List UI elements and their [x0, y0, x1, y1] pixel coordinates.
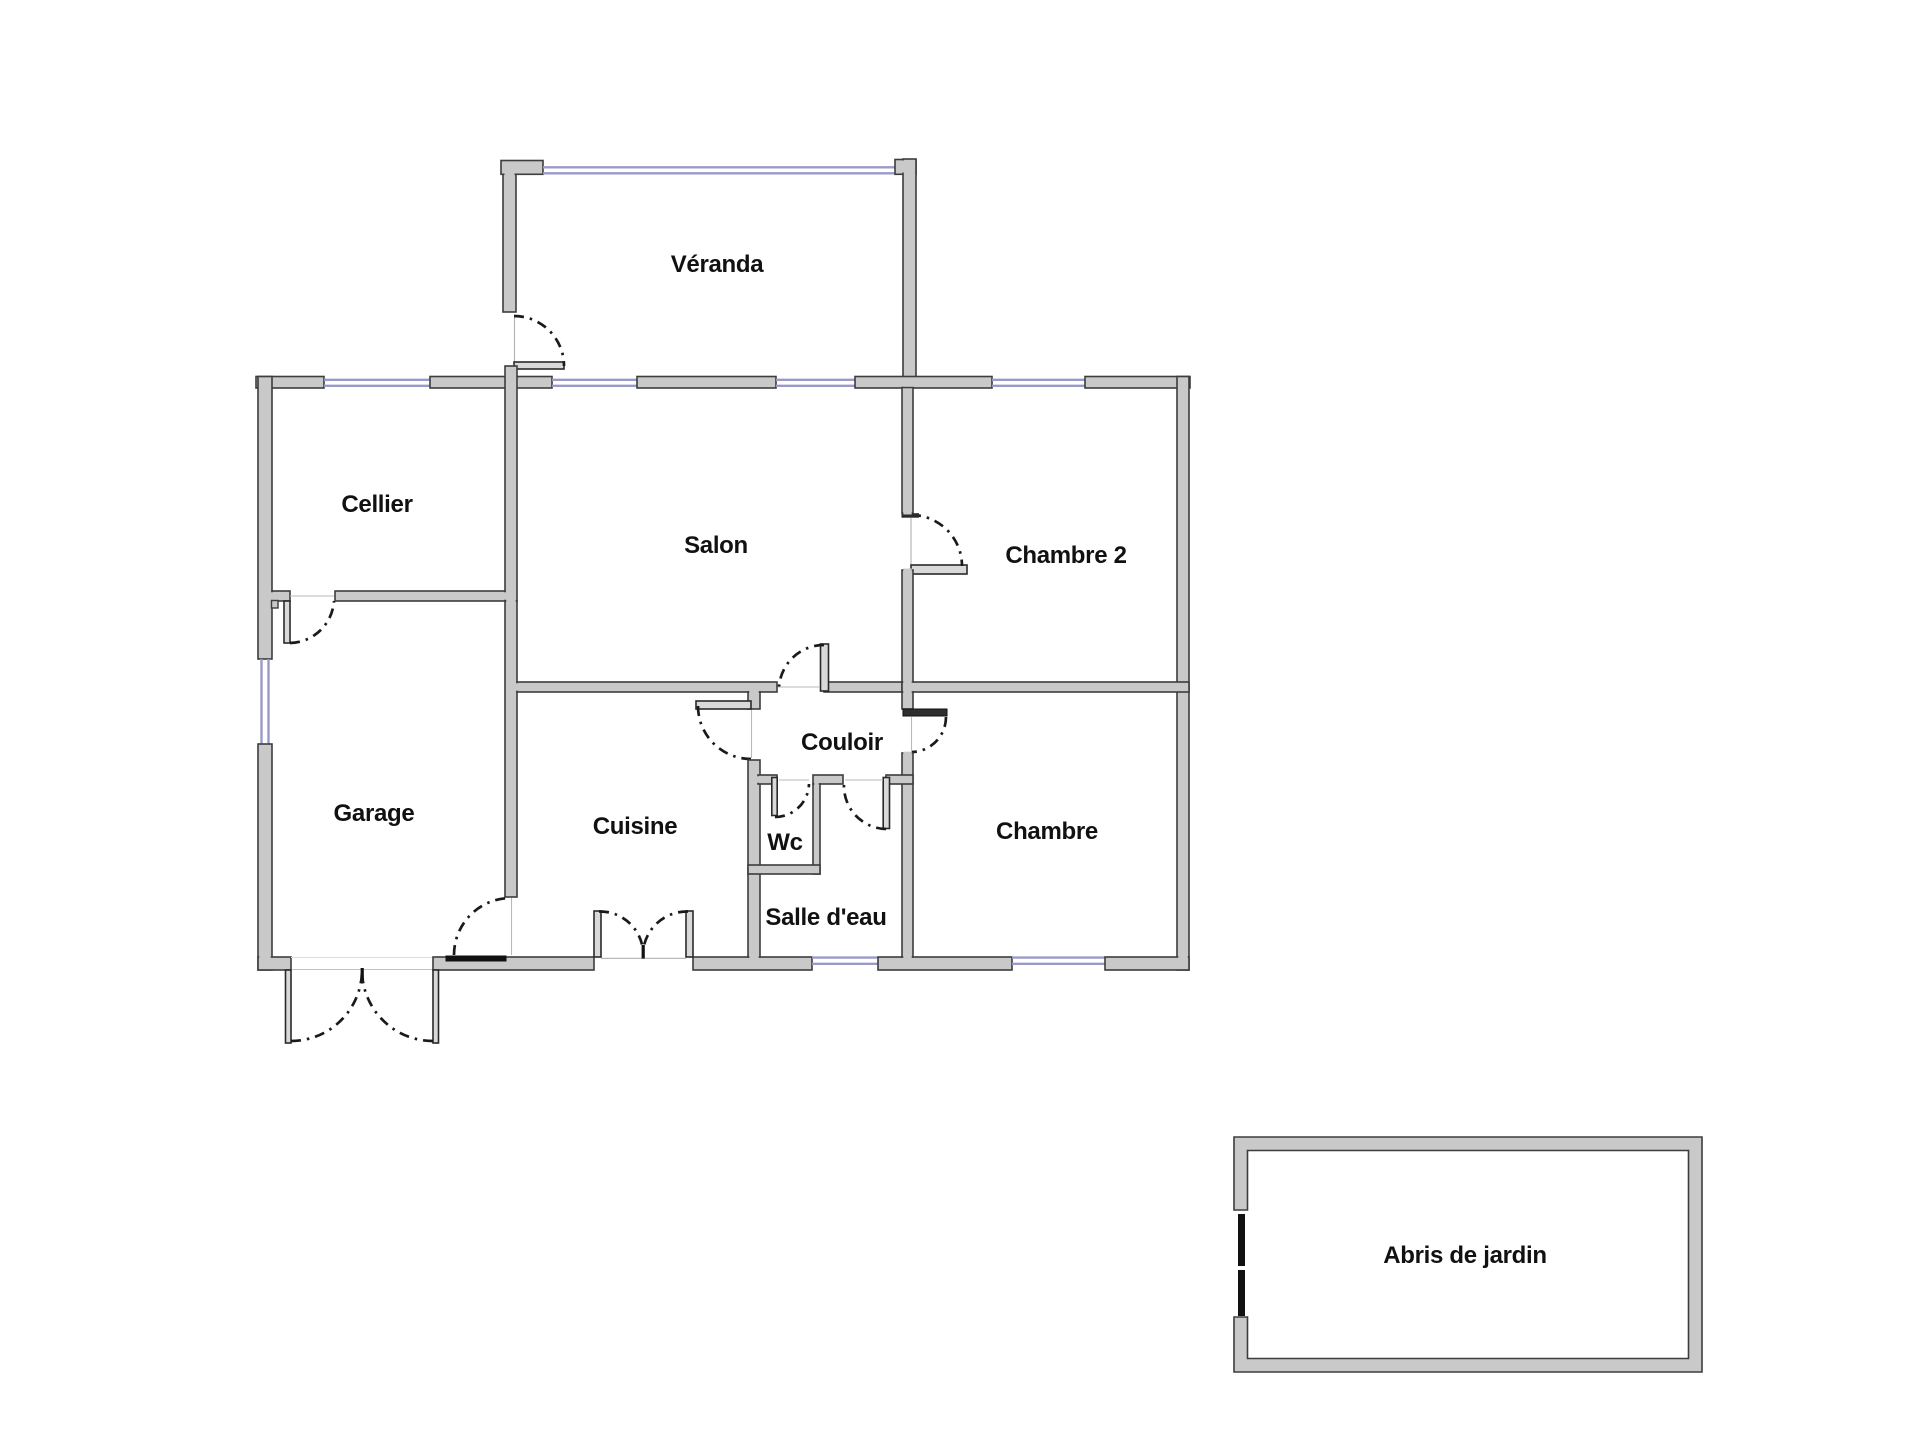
svg-text:Couloir: Couloir	[801, 729, 883, 756]
svg-text:Chambre 2: Chambre 2	[1005, 542, 1126, 569]
svg-text:Cuisine: Cuisine	[593, 813, 678, 840]
svg-text:Chambre: Chambre	[996, 818, 1098, 845]
svg-text:Salle d'eau: Salle d'eau	[765, 904, 886, 931]
svg-text:Wc: Wc	[767, 829, 802, 856]
svg-text:Véranda: Véranda	[671, 251, 765, 278]
svg-text:Salon: Salon	[684, 532, 748, 559]
svg-text:Garage: Garage	[334, 800, 415, 827]
svg-text:Cellier: Cellier	[341, 491, 412, 518]
svg-text:Abris de jardin: Abris de jardin	[1383, 1242, 1547, 1269]
